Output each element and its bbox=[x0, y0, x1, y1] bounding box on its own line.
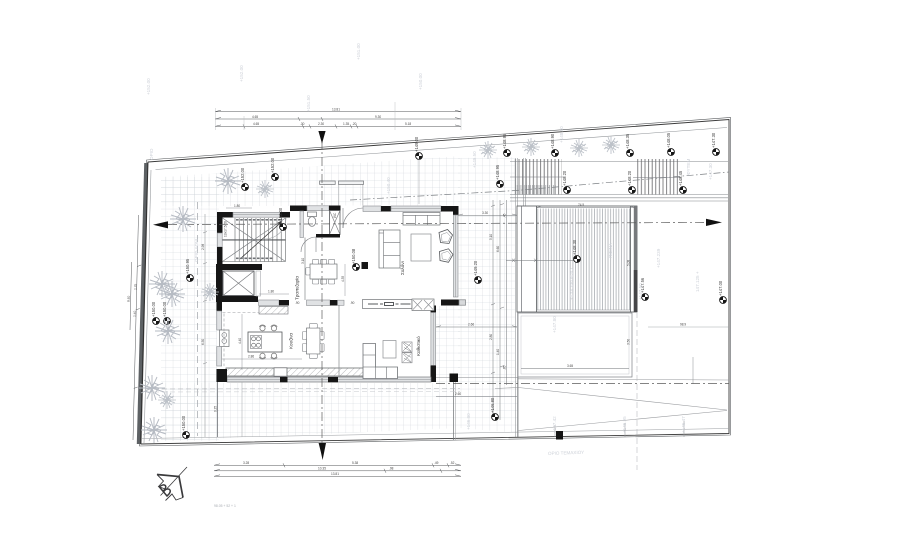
svg-text:+148.95: +148.95 bbox=[495, 164, 500, 180]
svg-text:+147.239: +147.239 bbox=[656, 248, 661, 268]
svg-text:2.66: 2.66 bbox=[468, 323, 474, 327]
svg-text:6.60: 6.60 bbox=[496, 246, 500, 252]
svg-text:5.08: 5.08 bbox=[627, 260, 631, 266]
svg-text:+150.00: +150.00 bbox=[181, 415, 186, 431]
svg-text:3.65: 3.65 bbox=[567, 364, 573, 368]
svg-text:+150.95: +150.95 bbox=[185, 258, 190, 274]
svg-text:1.75: 1.75 bbox=[133, 283, 137, 290]
svg-text:+151.00: +151.00 bbox=[356, 43, 361, 60]
svg-text:13.81: 13.81 bbox=[332, 108, 340, 112]
svg-text:.90: .90 bbox=[295, 301, 300, 305]
svg-text:5.10: 5.10 bbox=[489, 234, 493, 240]
svg-text:3.10: 3.10 bbox=[301, 258, 305, 264]
svg-text:147.125 +: 147.125 + bbox=[695, 271, 700, 292]
svg-text:+148.05: +148.05 bbox=[666, 132, 671, 148]
svg-text:+152.00: +152.00 bbox=[146, 78, 151, 95]
svg-text:98.05 + 52 + 1: 98.05 + 52 + 1 bbox=[214, 504, 236, 508]
svg-text:2.86: 2.86 bbox=[248, 355, 254, 359]
svg-text:+149.00: +149.00 bbox=[414, 136, 419, 152]
svg-text:+146.80: +146.80 bbox=[490, 397, 495, 413]
svg-text:4.65: 4.65 bbox=[252, 115, 258, 119]
svg-text:Καθιστικό: Καθιστικό bbox=[415, 336, 421, 356]
svg-text:5.18: 5.18 bbox=[405, 122, 411, 126]
svg-text:3.50: 3.50 bbox=[627, 339, 631, 345]
svg-text:ΠΙΣΙΝΑ: ΠΙΣΙΝΑ bbox=[608, 242, 613, 258]
svg-text:+146.95: +146.95 bbox=[622, 416, 627, 433]
svg-text:3.28: 3.28 bbox=[243, 461, 249, 465]
svg-text:13.81: 13.81 bbox=[331, 472, 339, 476]
svg-text:+ΞΥΛ.ΔΑΠΕΔΟ: +ΞΥΛ.ΔΑΠΕΔΟ bbox=[569, 268, 574, 300]
svg-text:2.80: 2.80 bbox=[489, 334, 493, 340]
svg-text:1.40: 1.40 bbox=[133, 310, 137, 317]
svg-text:+147.80: +147.80 bbox=[552, 316, 557, 333]
svg-text:+148.90: +148.90 bbox=[550, 133, 555, 149]
svg-text:.45: .45 bbox=[503, 213, 507, 218]
svg-text:.85: .85 bbox=[503, 365, 507, 370]
svg-text:.30: .30 bbox=[300, 122, 305, 126]
svg-text:4.35: 4.35 bbox=[341, 276, 345, 282]
svg-text:.52: .52 bbox=[450, 461, 455, 465]
svg-text:+147.30: +147.30 bbox=[711, 132, 716, 148]
svg-text:6.50: 6.50 bbox=[201, 339, 205, 345]
svg-text:+146.80: +146.80 bbox=[466, 413, 471, 430]
svg-text:+148.90: +148.90 bbox=[559, 126, 564, 143]
svg-text:9.30: 9.30 bbox=[375, 115, 381, 119]
svg-text:5.38: 5.38 bbox=[352, 461, 358, 465]
svg-text:ΦΥΤΕΜ: ΦΥΤΕΜ bbox=[686, 159, 691, 175]
svg-text:WC: WC bbox=[333, 212, 337, 218]
svg-text:+152.00: +152.00 bbox=[278, 207, 283, 223]
svg-text:4.65: 4.65 bbox=[253, 122, 259, 126]
svg-text:ΟΡΙΟ ΔΟΜ: ΟΡΙΟ ΔΟΜ bbox=[194, 239, 199, 262]
svg-text:1.35: 1.35 bbox=[343, 122, 349, 126]
svg-text:ΟΡΙΟ: ΟΡΙΟ bbox=[149, 148, 154, 160]
svg-text:+150.08: +150.08 bbox=[351, 248, 356, 264]
svg-text:2.30: 2.30 bbox=[318, 122, 324, 126]
svg-text:+147.00: +147.00 bbox=[718, 280, 723, 296]
svg-text:19x17.5/28: 19x17.5/28 bbox=[224, 221, 228, 237]
svg-text:+148.45: +148.45 bbox=[678, 170, 683, 186]
svg-text:2.98: 2.98 bbox=[201, 244, 205, 250]
svg-text:+148.20: +148.20 bbox=[627, 170, 632, 186]
svg-text:.98: .98 bbox=[389, 467, 394, 471]
svg-text:+148.35: +148.35 bbox=[625, 133, 630, 149]
svg-text:+149.20: +149.20 bbox=[473, 260, 478, 276]
svg-text:1.40: 1.40 bbox=[496, 349, 500, 355]
svg-text:74.5: 74.5 bbox=[578, 203, 584, 207]
svg-text:+152.00: +152.00 bbox=[270, 157, 275, 173]
svg-text:+150.00: +150.00 bbox=[418, 73, 423, 90]
svg-text:+150.40: +150.40 bbox=[386, 177, 391, 194]
svg-text:+150.00: +150.00 bbox=[151, 301, 156, 317]
svg-text:+149.50: +149.50 bbox=[472, 151, 477, 168]
svg-text:+148.30: +148.30 bbox=[572, 239, 577, 255]
svg-text:+152.00: +152.00 bbox=[239, 65, 244, 82]
svg-text:+151.50: +151.50 bbox=[306, 95, 311, 112]
svg-text:.20: .20 bbox=[352, 122, 357, 126]
svg-text:.49: .49 bbox=[434, 461, 439, 465]
svg-text:+147.50: +147.50 bbox=[638, 283, 643, 300]
svg-text:1.80: 1.80 bbox=[268, 290, 274, 294]
svg-text:0.25: 0.25 bbox=[214, 406, 218, 412]
svg-text:+148.20: +148.20 bbox=[562, 170, 567, 186]
svg-text:+148.95: +148.95 bbox=[502, 133, 507, 149]
svg-text:3.30: 3.30 bbox=[482, 211, 488, 215]
svg-text:8.60: 8.60 bbox=[127, 295, 131, 302]
svg-text:+150.00: +150.00 bbox=[162, 301, 167, 317]
svg-text:.90: .90 bbox=[350, 301, 355, 305]
svg-text:10.35: 10.35 bbox=[318, 467, 326, 471]
svg-text:+146.47: +146.47 bbox=[681, 416, 686, 433]
svg-text:+147.42: +147.42 bbox=[552, 416, 557, 433]
svg-text:98.9: 98.9 bbox=[680, 323, 686, 327]
svg-text:4.40: 4.40 bbox=[238, 338, 242, 344]
svg-text:1.80: 1.80 bbox=[234, 204, 240, 208]
svg-text:+147.30: +147.30 bbox=[708, 163, 713, 180]
svg-text:2.60: 2.60 bbox=[455, 392, 461, 396]
